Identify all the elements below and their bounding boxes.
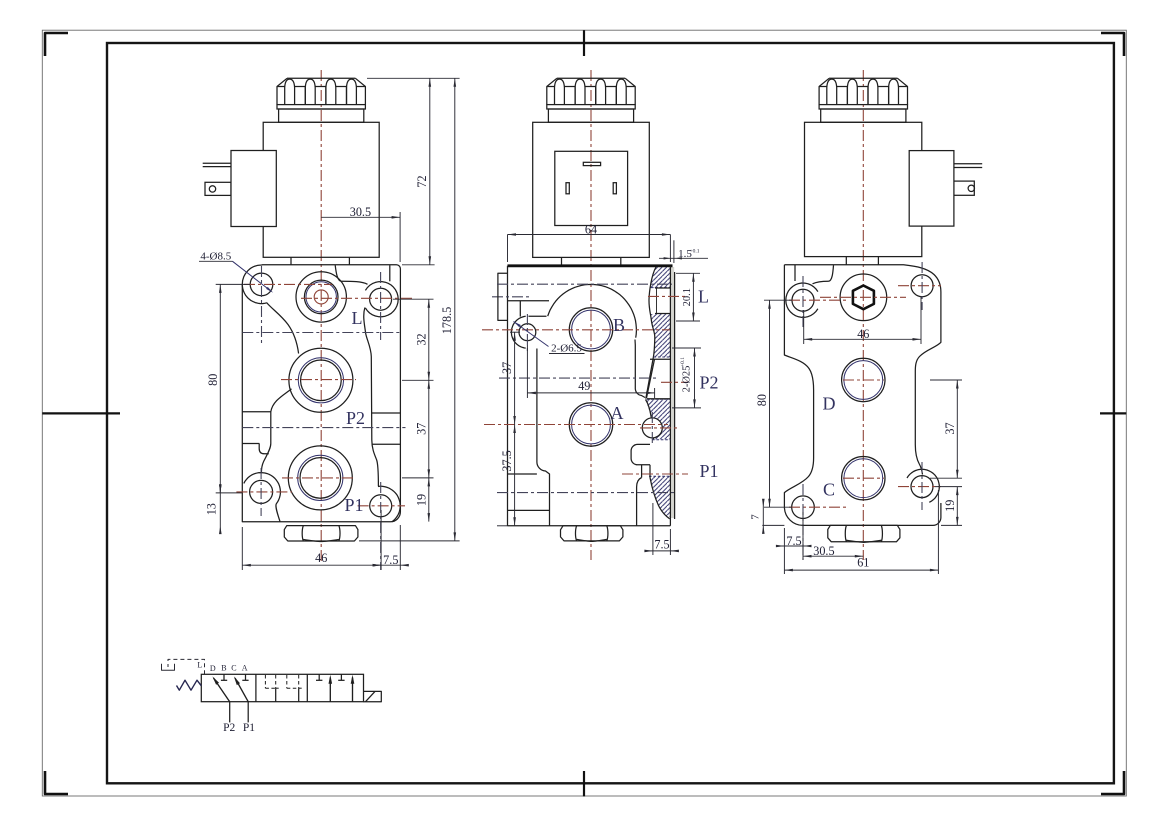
svg-text:+0.1: +0.1: [690, 249, 700, 255]
svg-text:D: D: [823, 394, 836, 414]
svg-text:C: C: [823, 480, 835, 500]
svg-text:72: 72: [415, 175, 429, 187]
svg-text:C: C: [231, 664, 236, 673]
svg-text:19: 19: [943, 500, 957, 512]
svg-text:64: 64: [585, 223, 597, 237]
svg-text:L: L: [352, 308, 363, 328]
svg-text:37: 37: [500, 362, 514, 374]
svg-text:4-Ø8.5: 4-Ø8.5: [200, 250, 231, 262]
svg-text:80: 80: [755, 394, 769, 406]
svg-text:7.5: 7.5: [786, 534, 801, 548]
svg-text:B: B: [613, 315, 625, 335]
svg-text:7.5: 7.5: [654, 537, 669, 551]
svg-text:B: B: [221, 664, 226, 673]
svg-text:+0.1: +0.1: [680, 357, 686, 367]
svg-text:P1: P1: [344, 495, 363, 515]
svg-text:L: L: [197, 661, 202, 670]
svg-text:A: A: [611, 403, 624, 423]
svg-text:37: 37: [414, 423, 428, 435]
svg-text:32: 32: [414, 333, 428, 345]
svg-text:30.5: 30.5: [350, 205, 371, 219]
svg-text:20.1: 20.1: [682, 288, 693, 306]
svg-text:7.5: 7.5: [383, 553, 398, 567]
svg-text:46: 46: [857, 327, 869, 341]
svg-text:A: A: [242, 664, 248, 673]
svg-text:P2: P2: [223, 722, 235, 734]
svg-text:2-Ø6.5: 2-Ø6.5: [551, 343, 582, 355]
svg-text:30.5: 30.5: [813, 544, 834, 558]
svg-text:19: 19: [414, 494, 428, 506]
svg-text:80: 80: [206, 374, 220, 386]
svg-text:P1: P1: [699, 461, 718, 481]
svg-text:37: 37: [943, 422, 957, 434]
svg-text:61: 61: [857, 556, 869, 570]
svg-text:49: 49: [578, 379, 590, 393]
svg-text:178.5: 178.5: [440, 307, 454, 334]
svg-text:P2: P2: [346, 408, 365, 428]
svg-text:13: 13: [205, 503, 219, 515]
svg-text:7: 7: [750, 514, 762, 520]
svg-text:L: L: [698, 287, 709, 307]
svg-text:D: D: [210, 664, 216, 673]
svg-text:P1: P1: [243, 722, 255, 734]
svg-text:37.5: 37.5: [500, 450, 514, 471]
svg-text:46: 46: [315, 551, 327, 565]
svg-text:P2: P2: [699, 373, 718, 393]
svg-text:2-Ø25: 2-Ø25: [682, 366, 693, 393]
